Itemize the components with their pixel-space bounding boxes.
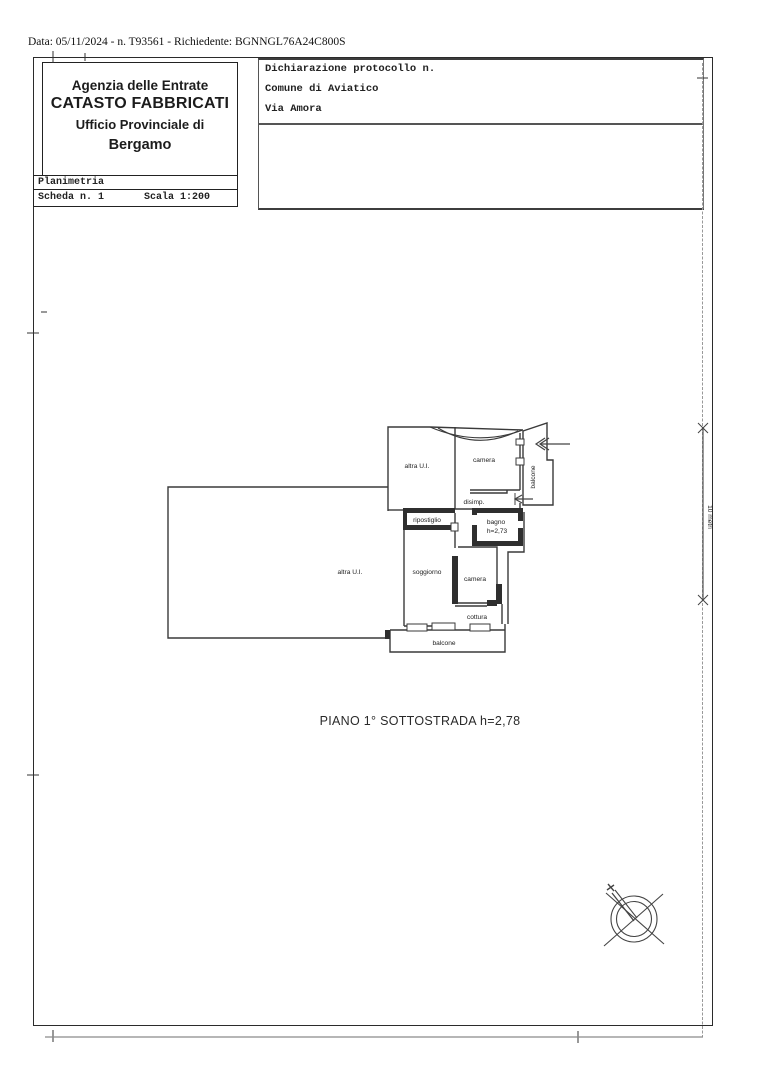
entry-arrow-icon: [536, 438, 570, 450]
room-label-soggiorno: soggiorno: [413, 569, 442, 576]
room-labels: altra U.I. camera balcone disimp. ripost…: [338, 457, 537, 647]
room-label-balcone-right: balcone: [530, 465, 537, 488]
floor-plan-drawing: 10 metri: [0, 0, 763, 1079]
room-label-bagno-height: h=2,73: [487, 528, 508, 535]
plan-walls: [168, 423, 553, 652]
room-label-disimp: disimp.: [464, 499, 485, 506]
cadastral-document-page: Data: 05/11/2024 - n. T93561 - Richieden…: [0, 0, 763, 1079]
room-label-altra-ui-large: altra U.I.: [338, 569, 363, 576]
north-compass-icon: [604, 884, 664, 946]
room-label-ripostiglio: ripostiglio: [413, 517, 441, 524]
door-arrow-icon: [515, 493, 533, 505]
frame-tick-marks: [27, 51, 708, 1043]
inner-border-lines: [45, 63, 703, 1037]
room-label-camera-lower: camera: [464, 576, 486, 583]
room-label-balcone-bottom: balcone: [432, 640, 455, 647]
room-label-bagno: bagno: [487, 519, 506, 526]
room-label-altra-ui-upper: altra U.I.: [405, 463, 430, 470]
scale-bar: 10 metri: [698, 423, 713, 605]
room-label-cottura: cottura: [467, 614, 487, 621]
room-label-camera-upper: camera: [473, 457, 495, 464]
scale-bar-label: 10 metri: [706, 505, 713, 529]
